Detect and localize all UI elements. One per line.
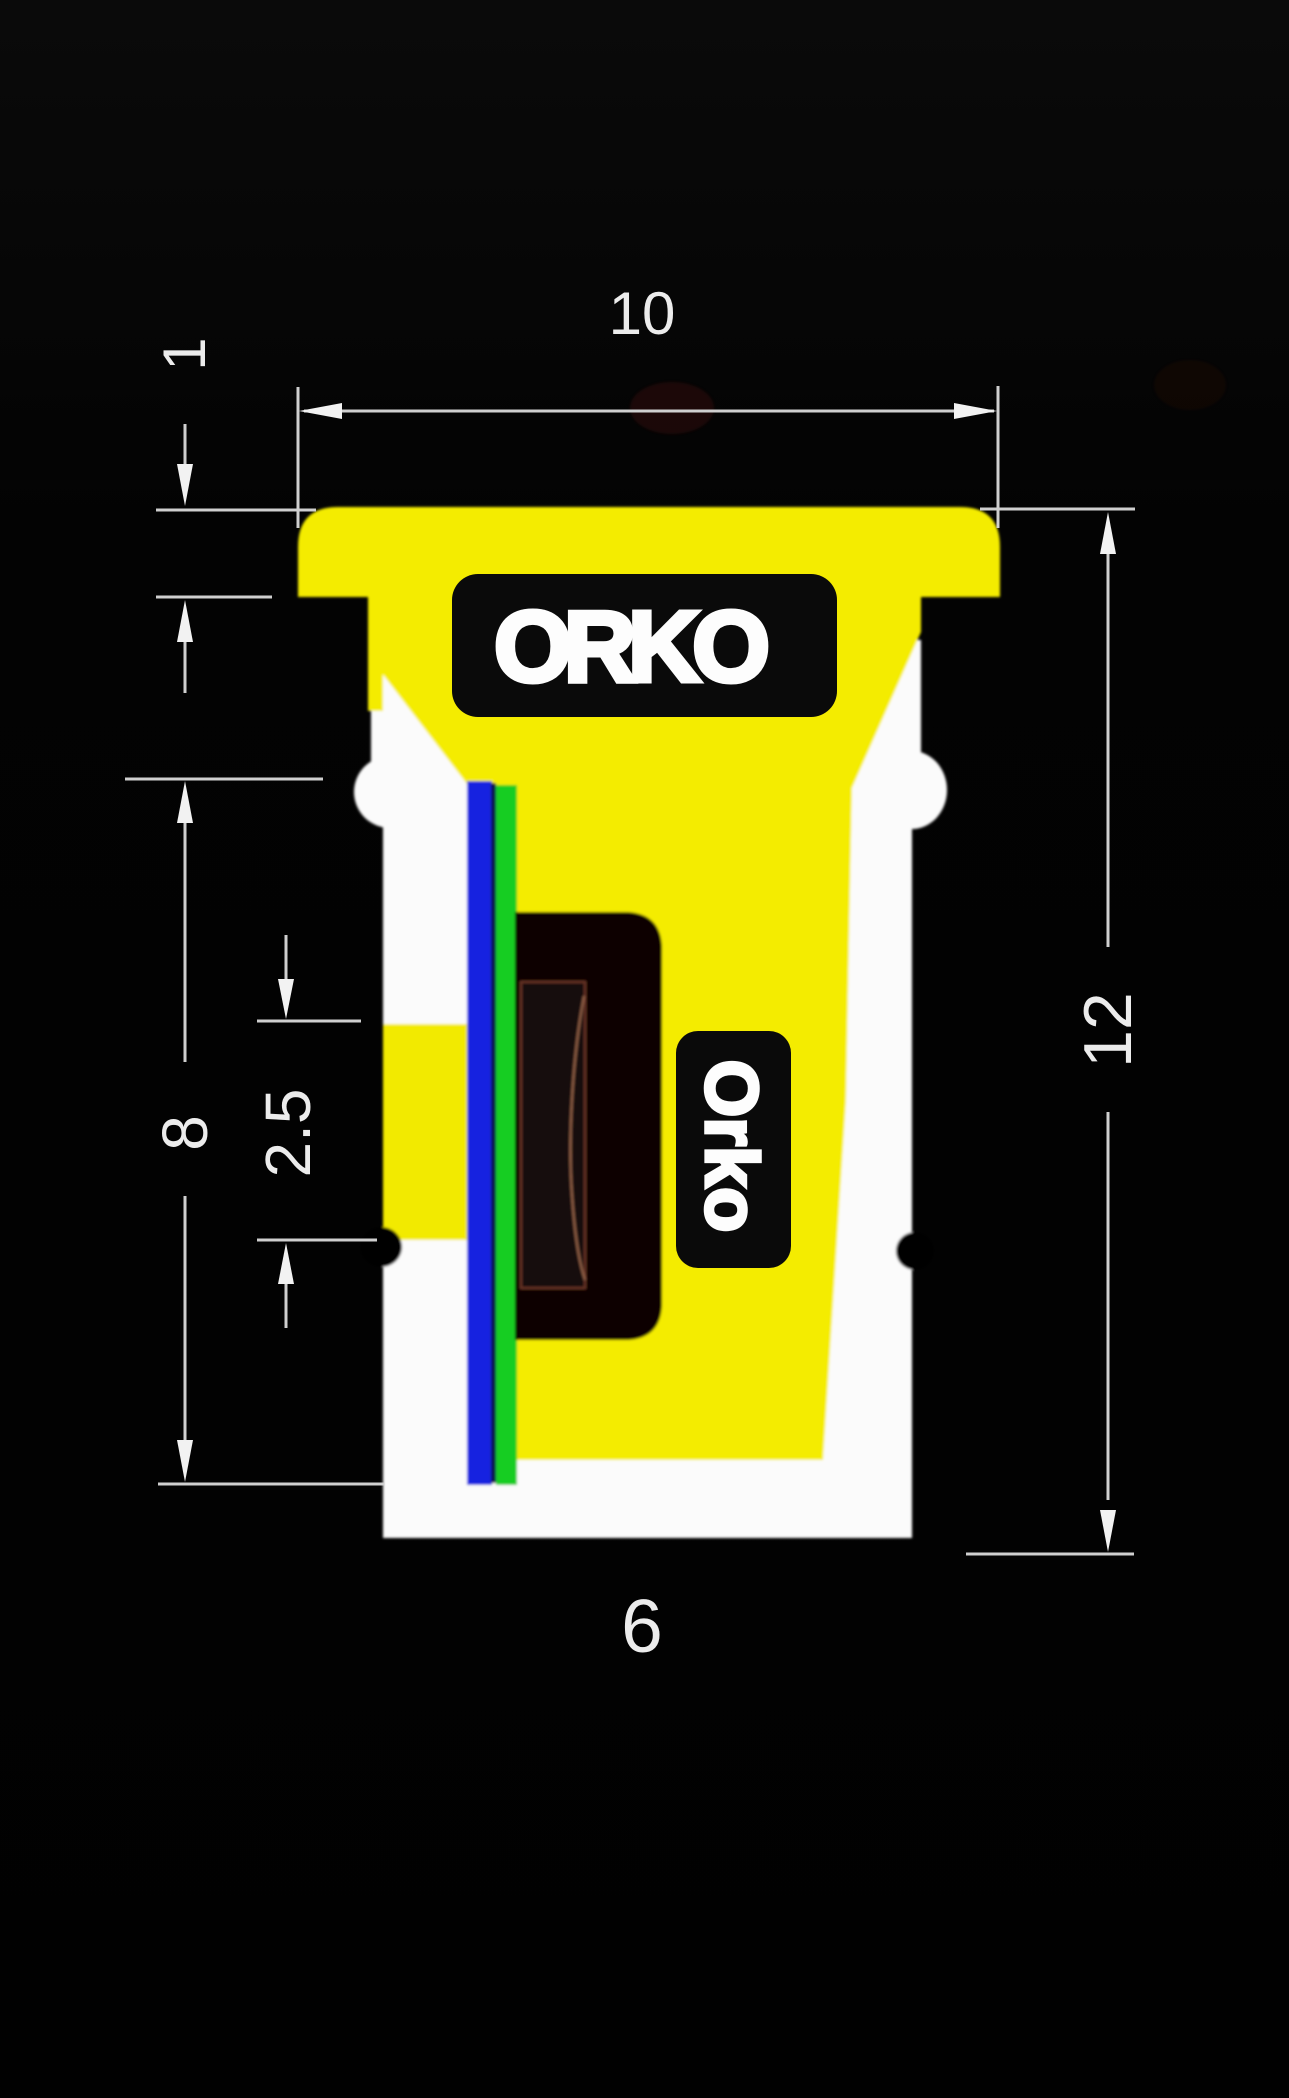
svg-text:10: 10 — [609, 280, 676, 347]
svg-text:8: 8 — [149, 1115, 221, 1151]
svg-text:Orko: Orko — [690, 1060, 773, 1233]
svg-text:6: 6 — [621, 1584, 663, 1668]
svg-text:2.5: 2.5 — [252, 1089, 324, 1178]
svg-text:12: 12 — [1070, 992, 1146, 1068]
svg-text:1: 1 — [151, 337, 218, 370]
svg-text:ORKO: ORKO — [494, 591, 766, 703]
